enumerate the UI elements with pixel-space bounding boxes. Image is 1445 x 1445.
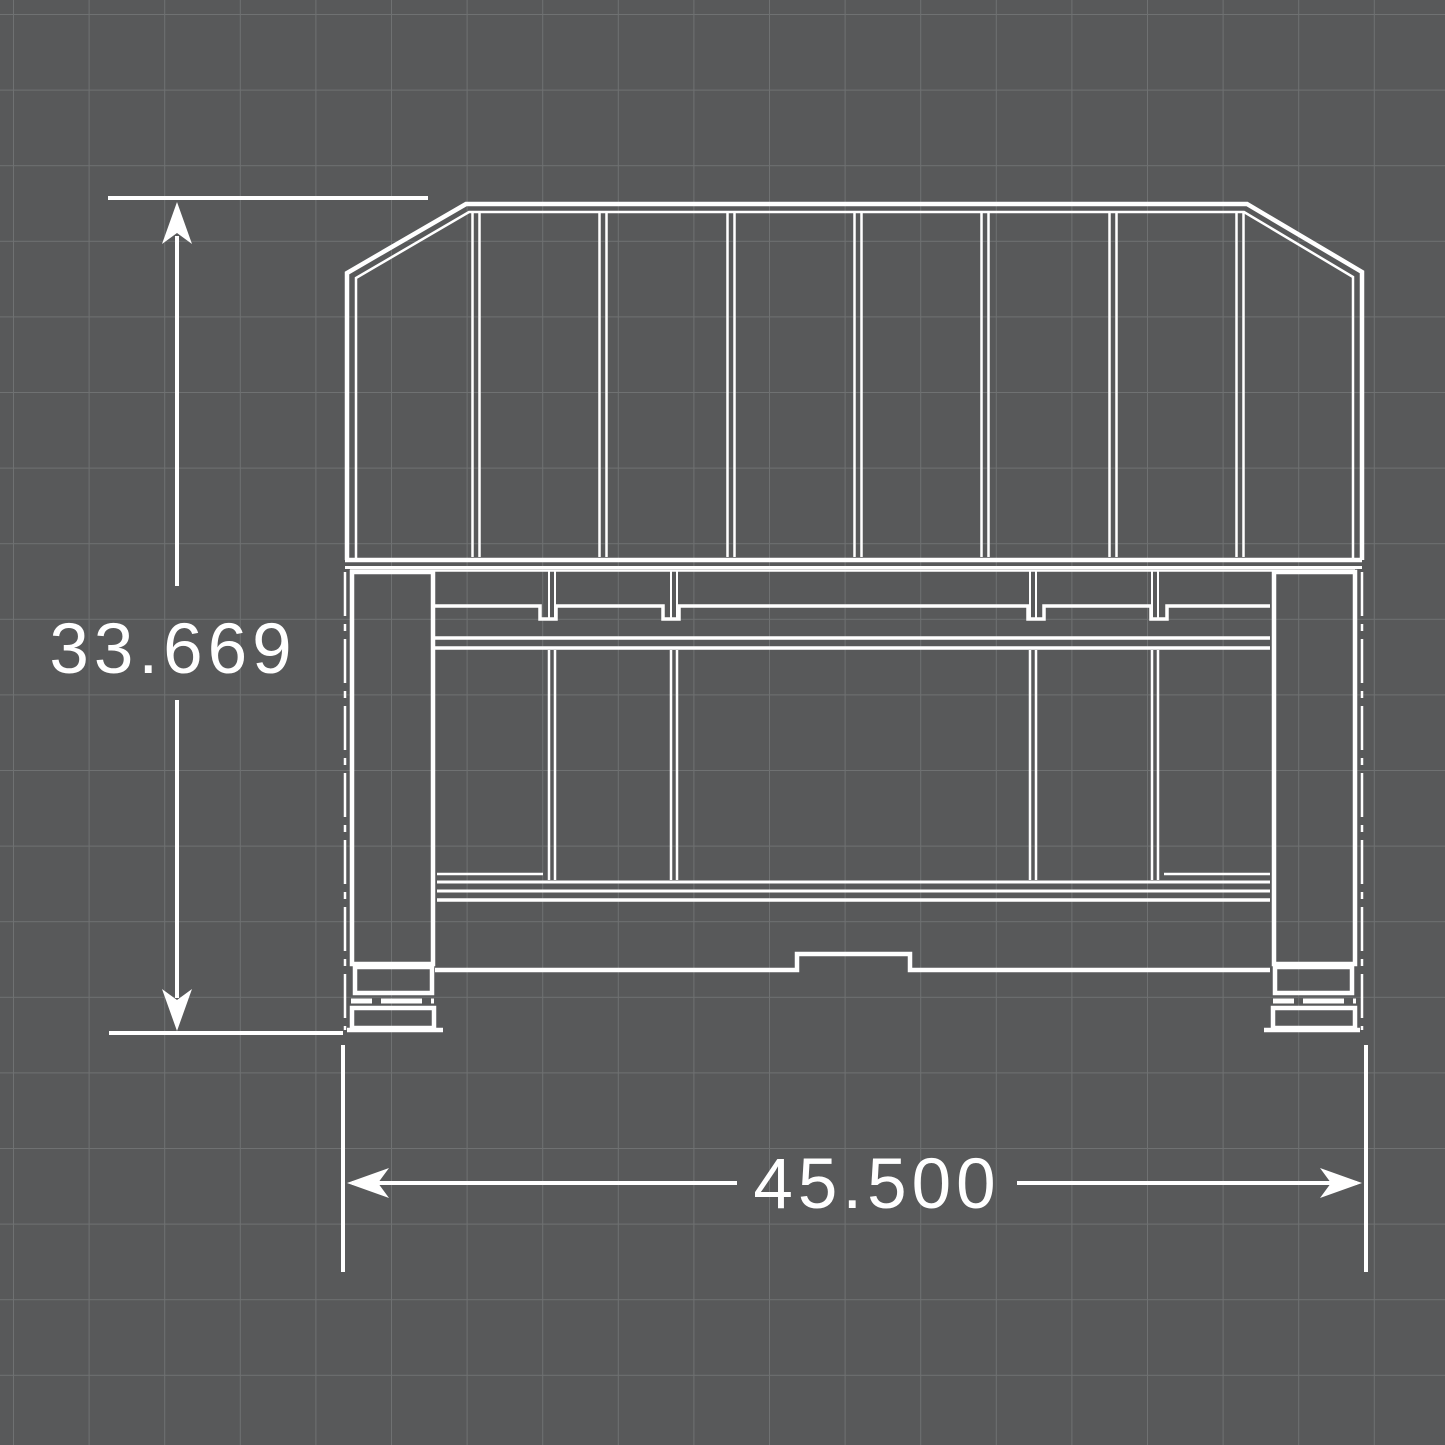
technical-drawing: 33.669 45.500 [0,0,1445,1445]
grid-background [0,0,1445,1445]
width-dimension-label: 45.500 [753,1145,1000,1224]
blueprint-canvas: 33.669 45.500 [0,0,1445,1445]
height-dimension-label: 33.669 [49,610,296,689]
